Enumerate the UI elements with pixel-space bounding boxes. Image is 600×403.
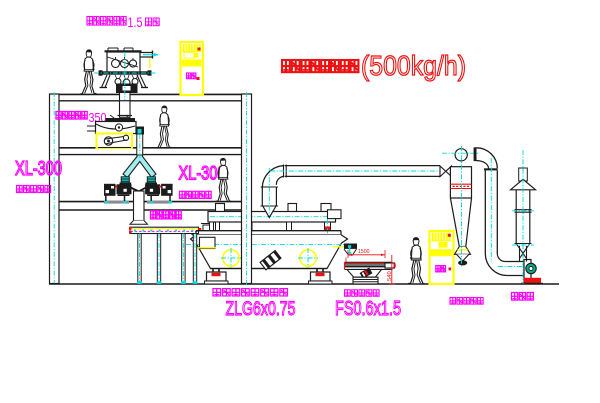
svg-text:XL-300: XL-300 — [15, 158, 62, 180]
svg-text:1.5: 1.5 — [128, 14, 143, 30]
svg-text:(500kg/h): (500kg/h) — [361, 50, 466, 81]
svg-text:FS0.6x1.5: FS0.6x1.5 — [335, 298, 401, 320]
svg-text:540: 540 — [387, 271, 393, 281]
svg-text:ZLG6x0.75: ZLG6x0.75 — [226, 298, 296, 320]
svg-text:1500: 1500 — [358, 249, 370, 255]
